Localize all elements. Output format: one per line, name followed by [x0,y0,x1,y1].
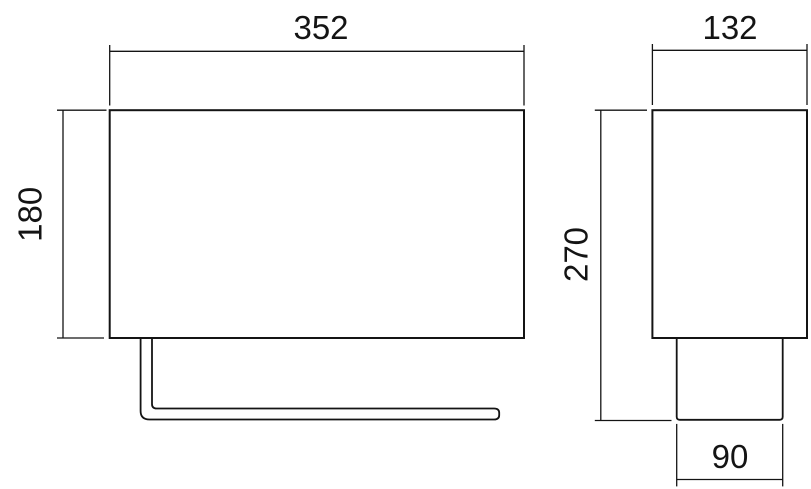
svg-text:90: 90 [712,438,749,475]
svg-text:270: 270 [558,227,595,282]
svg-text:180: 180 [12,187,49,242]
svg-text:352: 352 [293,9,348,46]
svg-text:132: 132 [702,9,757,46]
